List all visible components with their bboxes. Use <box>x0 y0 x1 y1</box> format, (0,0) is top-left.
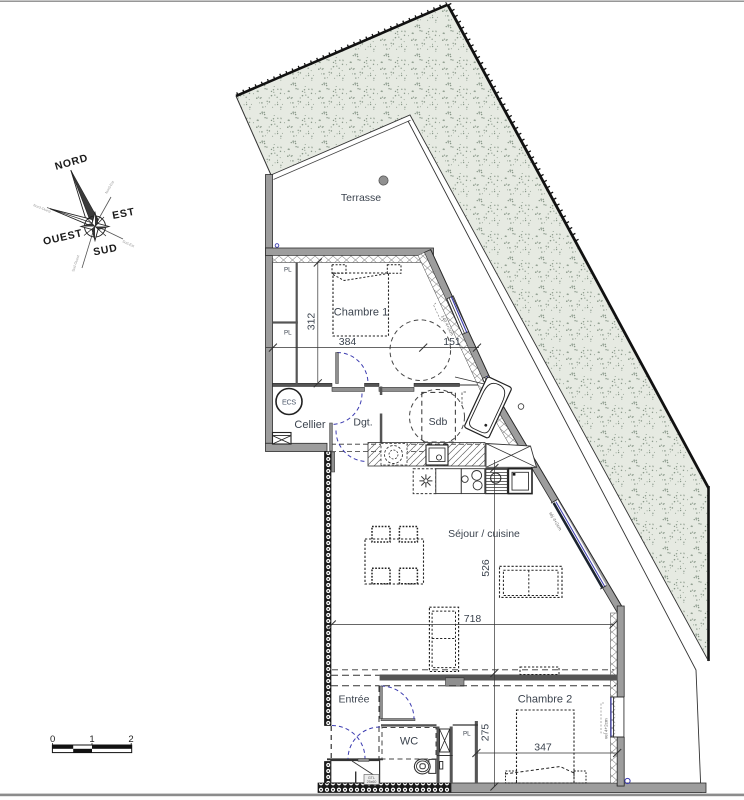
svg-text:Terrasse: Terrasse <box>341 192 381 204</box>
svg-text:ECS: ECS <box>282 397 296 406</box>
svg-text:718: 718 <box>464 613 482 625</box>
svg-text:Sdb: Sdb <box>429 416 448 428</box>
svg-text:25x60: 25x60 <box>367 780 377 784</box>
svg-text:151: 151 <box>443 336 461 348</box>
svg-text:Séjour / cuisine: Séjour / cuisine <box>448 528 520 540</box>
svg-text:PL: PL <box>463 731 471 738</box>
svg-text:PL: PL <box>284 330 292 337</box>
svg-text:Cellier: Cellier <box>294 419 326 431</box>
svg-text:Sud-Ouest: Sud-Ouest <box>71 255 80 273</box>
svg-text:PL: PL <box>284 267 292 274</box>
svg-text:OUEST: OUEST <box>42 227 84 248</box>
svg-text:526: 526 <box>480 559 492 577</box>
svg-text:vel 4+2cm: vel 4+2cm <box>604 718 609 739</box>
svg-text:Dgt.: Dgt. <box>353 417 372 429</box>
svg-text:Nord-Ouest: Nord-Ouest <box>33 203 52 214</box>
svg-text:SUD: SUD <box>92 242 118 258</box>
svg-text:Chambre 2: Chambre 2 <box>518 694 572 706</box>
svg-text:EST: EST <box>111 206 136 222</box>
svg-text:Chambre 1: Chambre 1 <box>334 307 388 319</box>
svg-text:Entrée: Entrée <box>339 694 370 706</box>
svg-text:WC: WC <box>400 736 418 748</box>
svg-text:347: 347 <box>534 741 552 753</box>
svg-text:384: 384 <box>339 336 357 348</box>
svg-text:275: 275 <box>480 724 492 742</box>
svg-text:312: 312 <box>305 313 317 331</box>
svg-text:Sud-Est: Sud-Est <box>122 239 135 248</box>
svg-text:NORD: NORD <box>54 152 90 173</box>
svg-text:Nord-Est: Nord-Est <box>104 180 115 194</box>
